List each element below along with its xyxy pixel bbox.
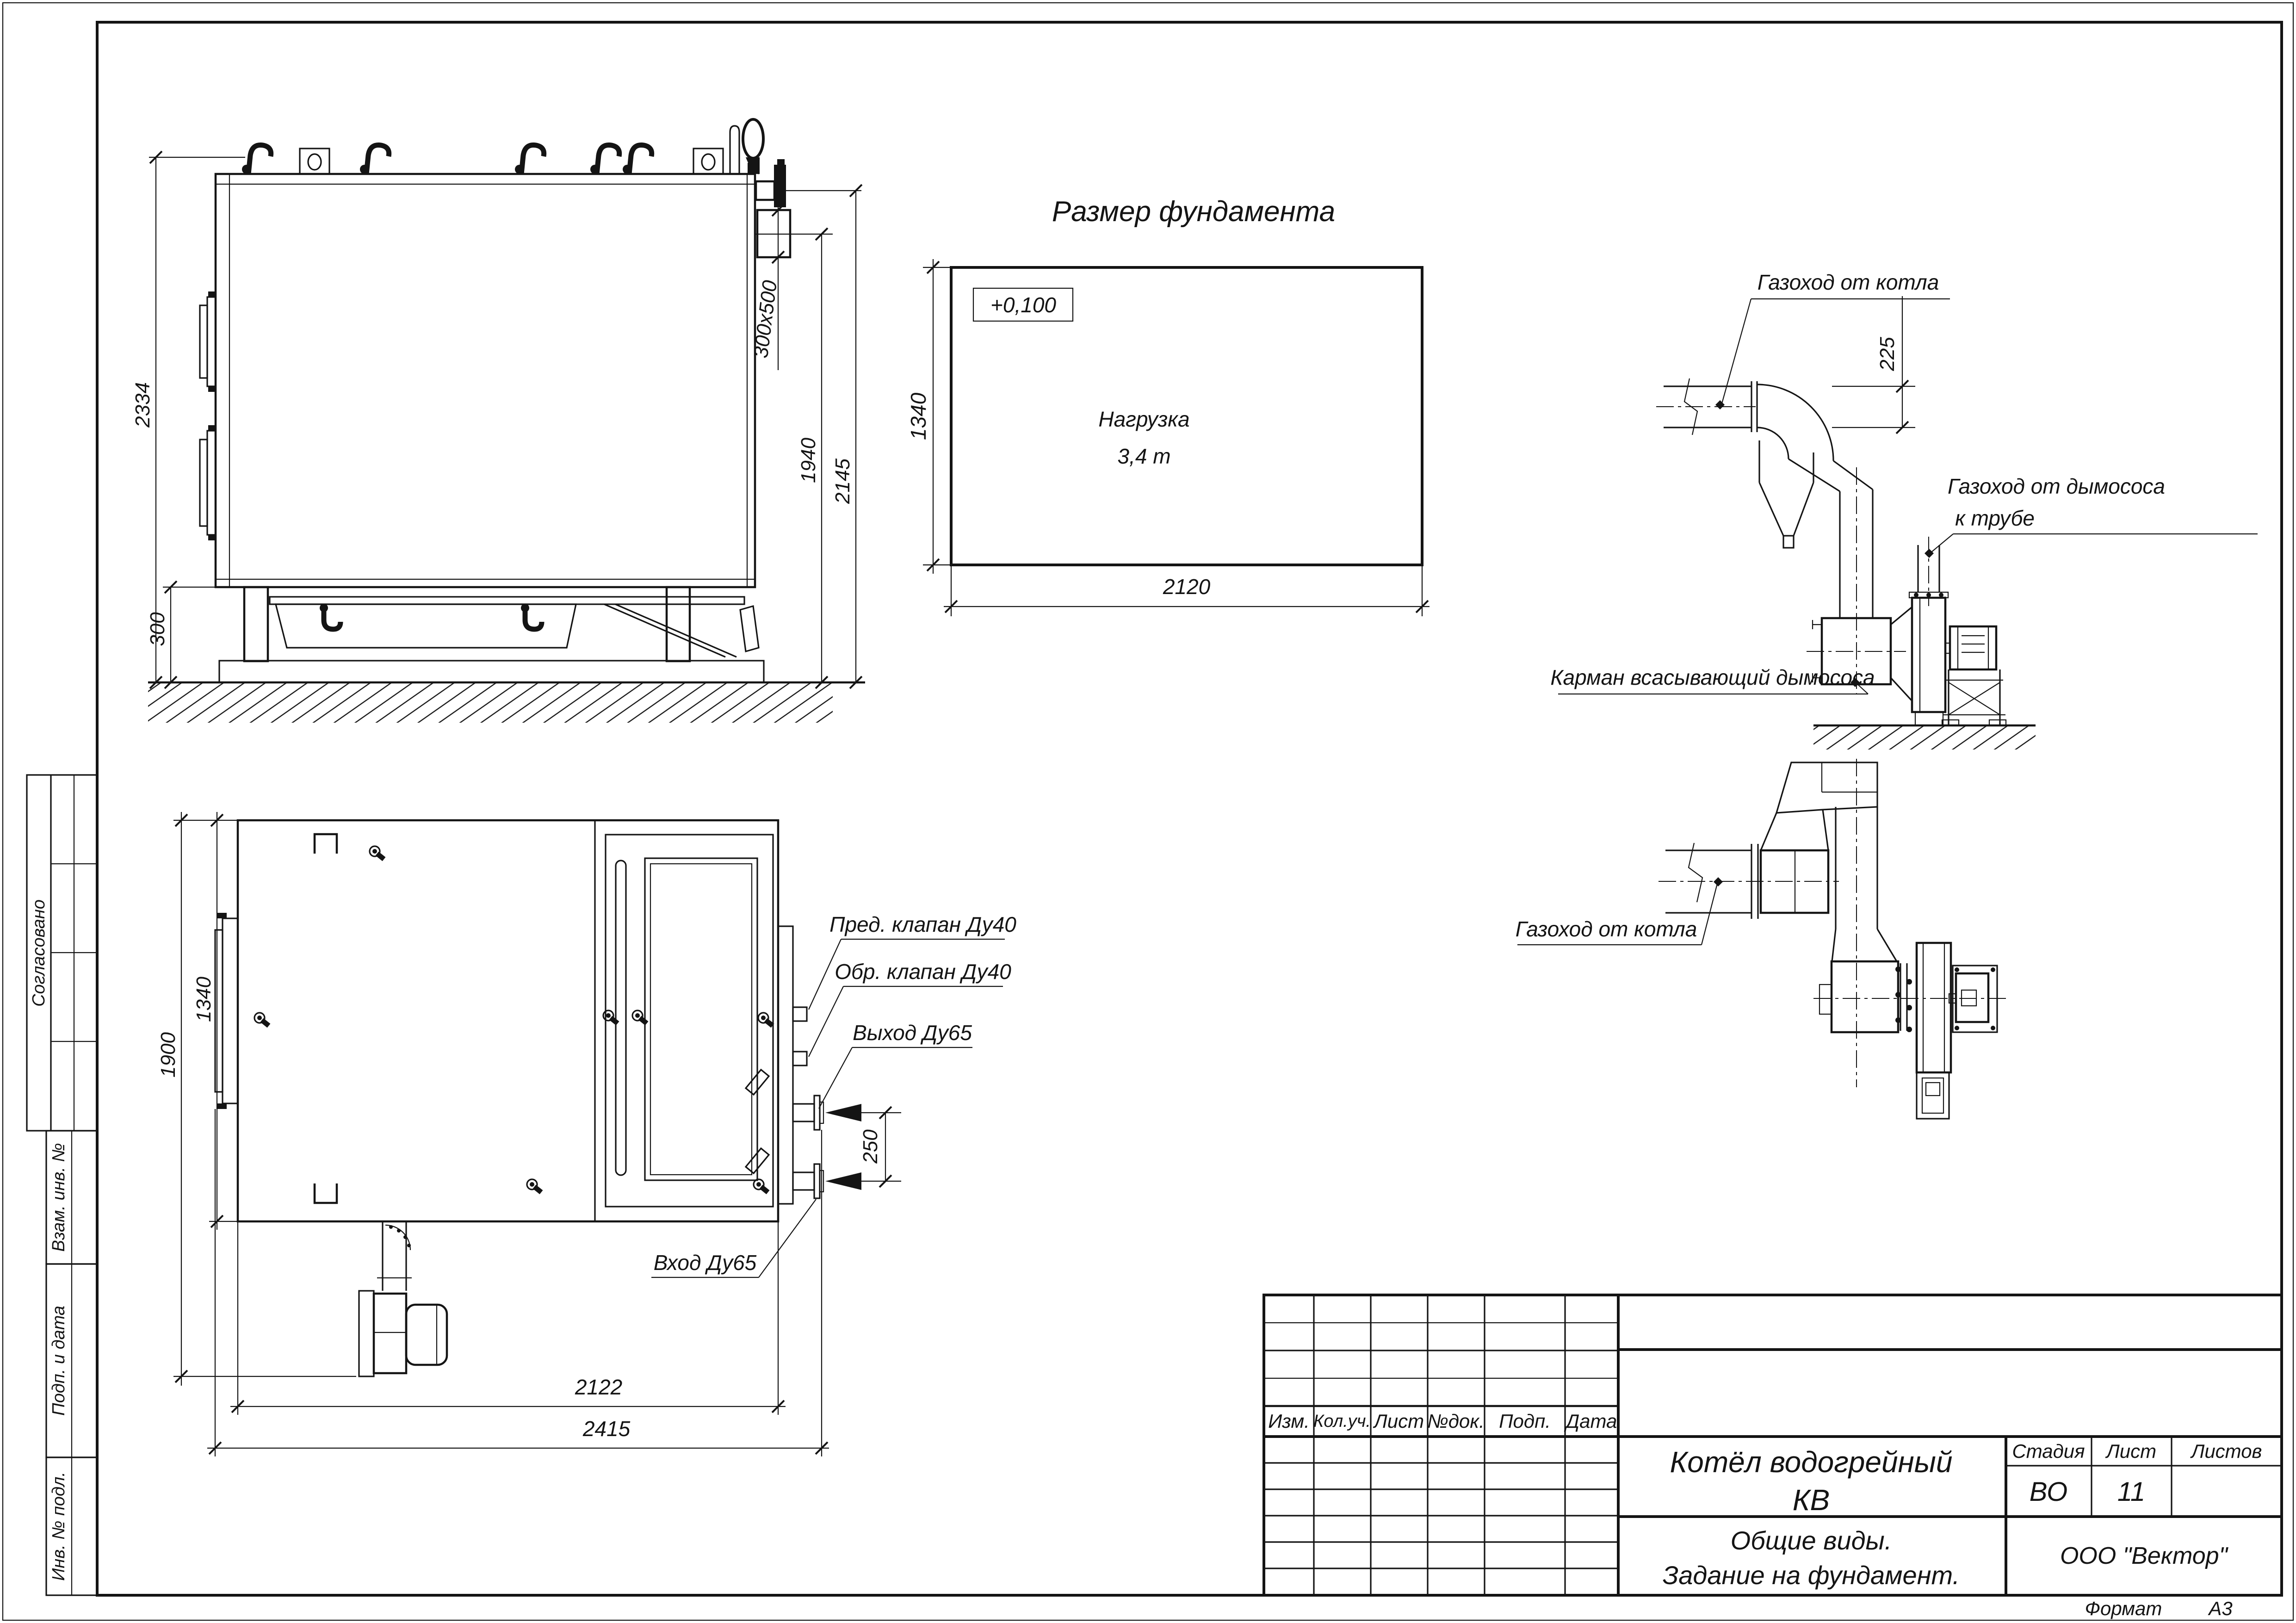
flue-outlet <box>755 159 861 257</box>
flue-to-stack-label-1: Газоход от дымососа <box>1948 476 2165 497</box>
dim-2145: 2145 <box>833 458 853 504</box>
stamp-doc-1: Общие виды. <box>1731 1528 1892 1554</box>
lifting-hooks <box>242 119 763 174</box>
dim-2120: 2120 <box>1163 576 1210 597</box>
drawing-linework <box>0 0 2296 1623</box>
foundation-title: Размер фундамента <box>1052 198 1335 226</box>
outlet-label: Выход Ду65 <box>853 1022 972 1043</box>
stamp-col-kol: Кол.уч. <box>1313 1412 1371 1430</box>
dim-300: 300 <box>148 612 168 646</box>
dim-2334: 2334 <box>133 382 153 427</box>
flue-plan-from-boiler-label: Газоход от котла <box>1516 918 1697 940</box>
support-frame <box>148 587 865 723</box>
stamp-col-izm: Изм. <box>1268 1412 1310 1431</box>
strip-podp: Подп. и дата <box>50 1306 68 1416</box>
dim-1900: 1900 <box>158 1032 179 1078</box>
format-value: А3 <box>2209 1599 2232 1618</box>
plan-lifting-eyes <box>254 846 773 1192</box>
stamp-product-2: КВ <box>1793 1485 1830 1515</box>
stamp-sheet-value: 11 <box>2117 1479 2145 1505</box>
strip-inv: Инв. № подл. <box>50 1472 68 1581</box>
burner <box>359 1221 447 1376</box>
dim-2415: 2415 <box>583 1418 630 1439</box>
dim-250: 250 <box>860 1129 881 1163</box>
side-view <box>148 119 865 723</box>
elevation-mark: +0,100 <box>990 294 1056 316</box>
format-label: Формат <box>2085 1599 2162 1618</box>
drawing-sheet: Размер фундамента +0,100 Нагрузка 3,4 т … <box>0 0 2296 1623</box>
stamp-col-podp: Подп. <box>1499 1412 1551 1431</box>
suction-pocket-label: Карман всасывающий дымососа <box>1550 667 1875 688</box>
dim-1340-foundation: 1340 <box>908 393 929 440</box>
inlet-label: Вход Ду65 <box>654 1252 757 1273</box>
stamp-company: ООО "Вектор" <box>2060 1544 2228 1568</box>
stamp-doc-2: Задание на фундамент. <box>1663 1562 1960 1588</box>
stamp-col-data: Дата <box>1566 1412 1617 1431</box>
plan-dimensions <box>173 812 829 1456</box>
stamp-col-list: Лист <box>1374 1412 1424 1431</box>
load-value: 3,4 т <box>1117 446 1170 467</box>
stamp-col-doc: №док. <box>1427 1412 1485 1431</box>
strip-vzam: Взам. инв. № <box>50 1143 68 1251</box>
stamp-stage-value: ВО <box>2030 1479 2068 1505</box>
flue-to-stack-label-2: к трубе <box>1955 508 2035 529</box>
stamp-product-1: Котёл водогрейный <box>1670 1447 1953 1477</box>
load-label: Нагрузка <box>1098 409 1189 430</box>
safety-valve-label: Пред. клапан Ду40 <box>829 914 1016 935</box>
stamp-sheets-label: Листов <box>2191 1442 2262 1461</box>
dim-1940: 1940 <box>798 438 819 483</box>
dim-225: 225 <box>1877 337 1898 371</box>
sheet-frame <box>3 3 2293 1620</box>
stamp-sheet-label: Лист <box>2106 1442 2156 1461</box>
dim-1340-plan: 1340 <box>194 977 214 1022</box>
dim-2122: 2122 <box>575 1376 622 1398</box>
stamp-stage-label: Стадия <box>2012 1442 2085 1461</box>
boiler-doors <box>200 291 216 540</box>
check-valve-label: Обр. клапан Ду40 <box>835 961 1011 982</box>
flue-from-boiler-label: Газоход от котла <box>1758 272 1939 293</box>
strip-approved: Согласовано <box>30 899 48 1007</box>
